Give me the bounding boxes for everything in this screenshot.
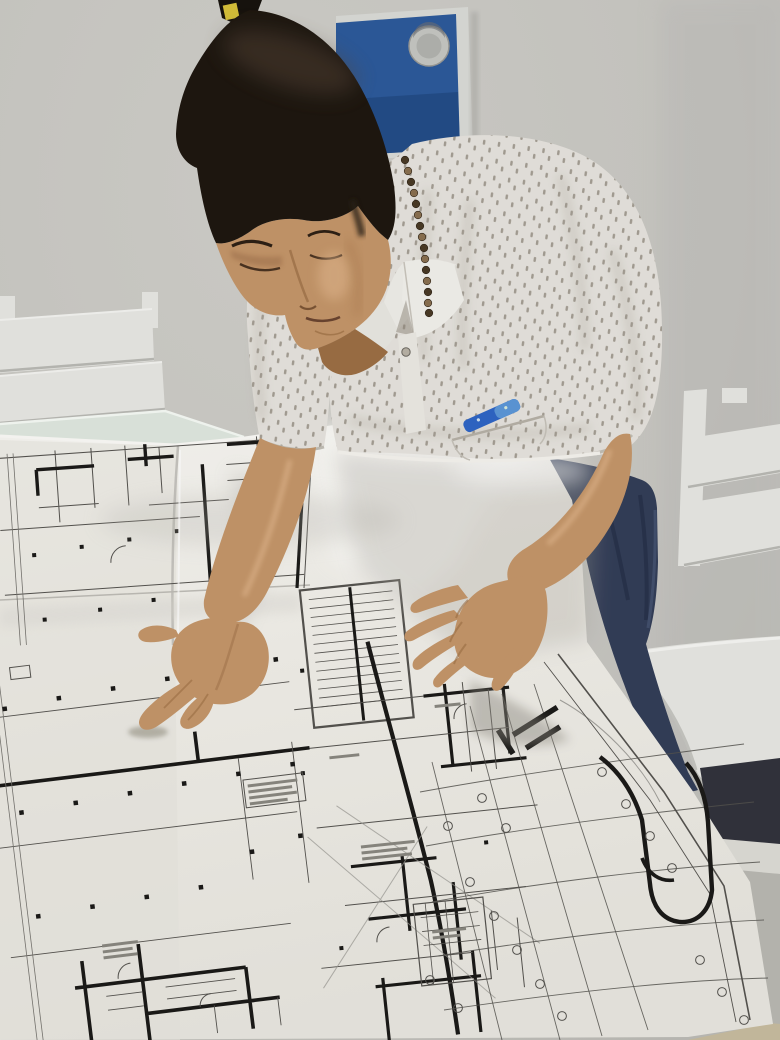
vignette xyxy=(0,0,780,1040)
photo-canvas xyxy=(0,0,780,1040)
photo-of-man-reading-blueprints xyxy=(0,0,780,1040)
